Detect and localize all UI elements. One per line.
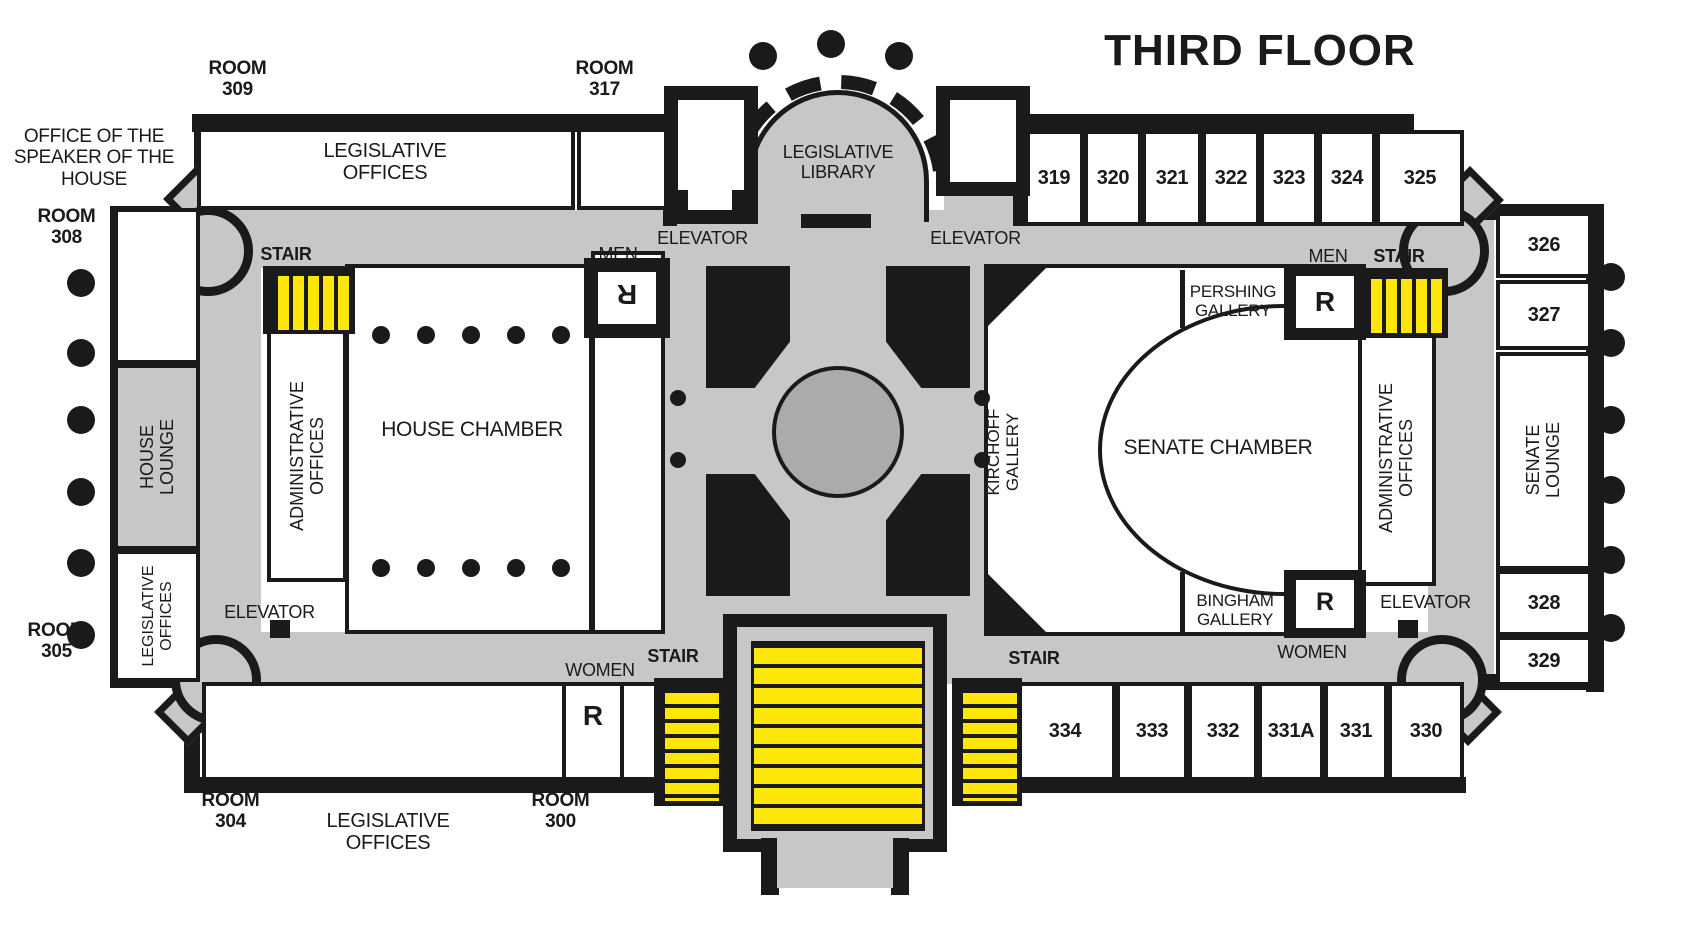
label-legislative-offices-west: LEGISLATIVE OFFICES: [136, 541, 180, 691]
column-dot: [1597, 263, 1625, 291]
rotunda-circle: [772, 366, 904, 498]
label-elevator-west-bottom: ELEVATOR: [222, 602, 317, 622]
label-men-west: MEN: [588, 244, 648, 264]
label-stair-nw: STAIR: [255, 244, 317, 264]
label-room-322: 322: [1202, 167, 1260, 189]
label-room-331: 331: [1324, 720, 1388, 742]
column-dot: [67, 339, 95, 367]
elevator-shaft-left-cab: [678, 100, 744, 190]
label-women-east: WOMEN: [1272, 642, 1352, 662]
label-legislative-library: LEGISLATIVE LIBRARY: [768, 142, 908, 182]
elevator-shaft-left-notch: [688, 188, 732, 210]
label-room-319: 319: [1024, 167, 1084, 189]
chamber-column-dot: [417, 559, 435, 577]
label-stair-se: STAIR: [1003, 648, 1065, 668]
rotunda-column-dot: [670, 390, 686, 406]
label-room-331A: 331A: [1258, 720, 1324, 742]
senate-gallery-partition-bottom: [1180, 572, 1185, 632]
label-house-lounge: HOUSE LOUNGE: [135, 372, 181, 542]
dome-entry-bar: [801, 214, 871, 228]
label-room-305: ROOM 305: [14, 620, 99, 663]
column-dot: [817, 30, 845, 58]
chamber-column-dot: [552, 559, 570, 577]
label-admin-offices-east: ADMINISTRATIVE OFFICES: [1372, 338, 1422, 578]
stair-se: [960, 686, 1020, 804]
room-house-chamber: [345, 264, 593, 634]
room-south-band-west: [202, 682, 566, 781]
stair-nw: [271, 273, 353, 333]
label-senate-chamber: SENATE CHAMBER: [1108, 436, 1328, 460]
chamber-column-dot: [552, 326, 570, 344]
rotunda-column-dot: [670, 452, 686, 468]
label-room-308: ROOM 308: [24, 206, 109, 249]
label-room-323: 323: [1260, 167, 1318, 189]
column-dot: [1597, 546, 1625, 574]
room-south-restroom: [562, 682, 624, 781]
label-room-327: 327: [1496, 304, 1592, 326]
label-speaker-office: OFFICE OF THE SPEAKER OF THE HOUSE: [8, 126, 180, 190]
room-317: [577, 128, 669, 210]
senate-gallery-partition-top: [1180, 270, 1185, 328]
label-legislative-offices-bottom: LEGISLATIVE OFFICES: [298, 810, 478, 855]
grand-staircase: [751, 641, 925, 831]
label-room-329: 329: [1496, 650, 1592, 672]
restroom-r-senate-bottom: R: [1296, 590, 1354, 615]
room-308-annex: [114, 208, 200, 364]
chamber-column-dot: [372, 326, 390, 344]
label-elevator-west-top: ELEVATOR: [655, 228, 750, 248]
label-admin-offices-west: ADMINISTRATIVE OFFICES: [283, 336, 333, 576]
page-title: THIRD FLOOR: [1100, 26, 1420, 75]
column-dot: [1597, 406, 1625, 434]
chamber-column-dot: [372, 559, 390, 577]
column-dot: [67, 549, 95, 577]
chamber-column-dot: [417, 326, 435, 344]
restroom-r-house-top: R: [598, 280, 656, 308]
chamber-column-dot: [462, 559, 480, 577]
label-room-317: ROOM 317: [562, 58, 647, 101]
label-room-333: 333: [1116, 720, 1188, 742]
label-room-328: 328: [1496, 592, 1592, 614]
elevator-door-marker-east: [1398, 620, 1418, 638]
column-dot: [1597, 614, 1625, 642]
label-room-334: 334: [1014, 720, 1116, 742]
label-kirchoff-gallery: KIRCHOFF GALLERY: [984, 377, 1024, 527]
label-senate-lounge: SENATE LOUNGE: [1521, 360, 1567, 560]
label-room-321: 321: [1142, 167, 1202, 189]
column-dot: [1597, 476, 1625, 504]
label-stair-ne: STAIR: [1368, 246, 1430, 266]
chamber-column-dot: [462, 326, 480, 344]
column-dot: [1597, 329, 1625, 357]
label-room-326: 326: [1496, 234, 1592, 256]
label-room-304: ROOM 304: [188, 790, 273, 833]
restroom-r-senate-top: R: [1296, 288, 1354, 316]
elevator-shaft-right-cab: [950, 100, 1016, 182]
label-room-325: 325: [1376, 167, 1464, 189]
label-room-309: ROOM 309: [195, 58, 280, 101]
chamber-column-dot: [507, 559, 525, 577]
floor-plan: R R R R THIRD FLOOR ROOM 309 ROOM 317 OF…: [0, 0, 1683, 932]
label-men-east: MEN: [1298, 246, 1358, 266]
restroom-r-south: R: [562, 702, 624, 730]
elevator-door-marker-west: [270, 620, 290, 638]
label-elevator-east-bottom: ELEVATOR: [1378, 592, 1473, 612]
label-room-300: ROOM 300: [518, 790, 603, 833]
column-dot: [67, 406, 95, 434]
label-room-332: 332: [1188, 720, 1258, 742]
portico-landing: [777, 836, 893, 888]
chamber-column-dot: [507, 326, 525, 344]
label-legislative-offices-top: LEGISLATIVE OFFICES: [295, 140, 475, 185]
column-dot: [67, 269, 95, 297]
label-house-chamber: HOUSE CHAMBER: [372, 418, 572, 442]
label-stair-sw: STAIR: [642, 646, 704, 666]
stair-ne: [1364, 276, 1446, 336]
stair-sw: [662, 686, 722, 804]
column-dot: [885, 42, 913, 70]
label-room-324: 324: [1318, 167, 1376, 189]
label-elevator-east-top: ELEVATOR: [928, 228, 1023, 248]
label-room-330: 330: [1388, 720, 1464, 742]
column-dot: [67, 478, 95, 506]
label-pershing-gallery: PERSHING GALLERY: [1188, 282, 1278, 320]
portico-jamb-right: [891, 838, 909, 895]
label-room-320: 320: [1084, 167, 1142, 189]
label-bingham-gallery: BINGHAM GALLERY: [1190, 591, 1280, 629]
label-women-west: WOMEN: [560, 660, 640, 680]
column-dot: [749, 42, 777, 70]
